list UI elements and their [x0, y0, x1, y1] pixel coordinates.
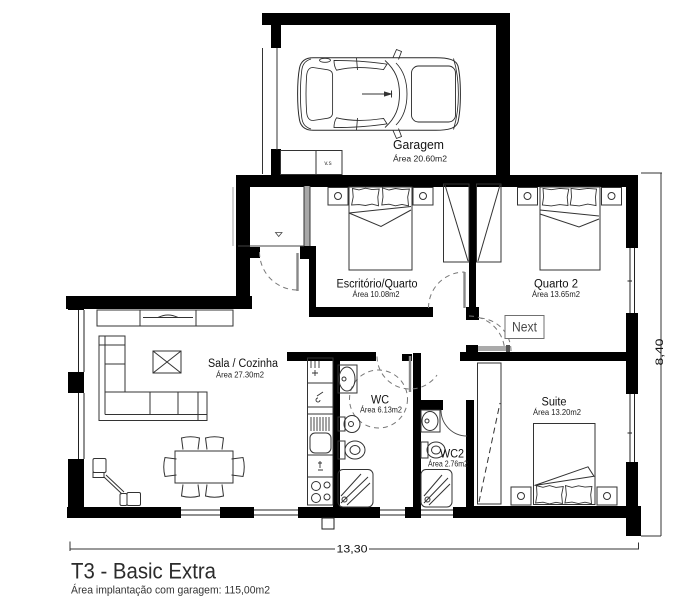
svg-text:8,40: 8,40	[654, 339, 666, 366]
svg-text:Garagem: Garagem	[393, 137, 444, 152]
svg-text:Área 20.60m2: Área 20.60m2	[393, 154, 447, 164]
svg-text:Área 10.08m2: Área 10.08m2	[353, 289, 400, 299]
svg-text:v.s: v.s	[324, 161, 331, 167]
svg-text:13,30: 13,30	[337, 544, 368, 556]
svg-text:Next: Next	[512, 320, 537, 335]
svg-text:Área 6.13m2: Área 6.13m2	[360, 405, 402, 415]
svg-text:Área implantação com garagem:: Área implantação com garagem: 115,00m2	[71, 584, 270, 597]
svg-text:Área 2.76m2: Área 2.76m2	[428, 459, 468, 469]
svg-text:T3 - Basic Extra: T3 - Basic Extra	[71, 559, 216, 584]
svg-text:Área 13.65m2: Área 13.65m2	[532, 289, 580, 299]
svg-text:Área 13.20m2: Área 13.20m2	[533, 407, 581, 417]
svg-text:Sala / Cozinha: Sala / Cozinha	[208, 358, 279, 370]
svg-text:Área 27.30m2: Área 27.30m2	[216, 370, 264, 380]
